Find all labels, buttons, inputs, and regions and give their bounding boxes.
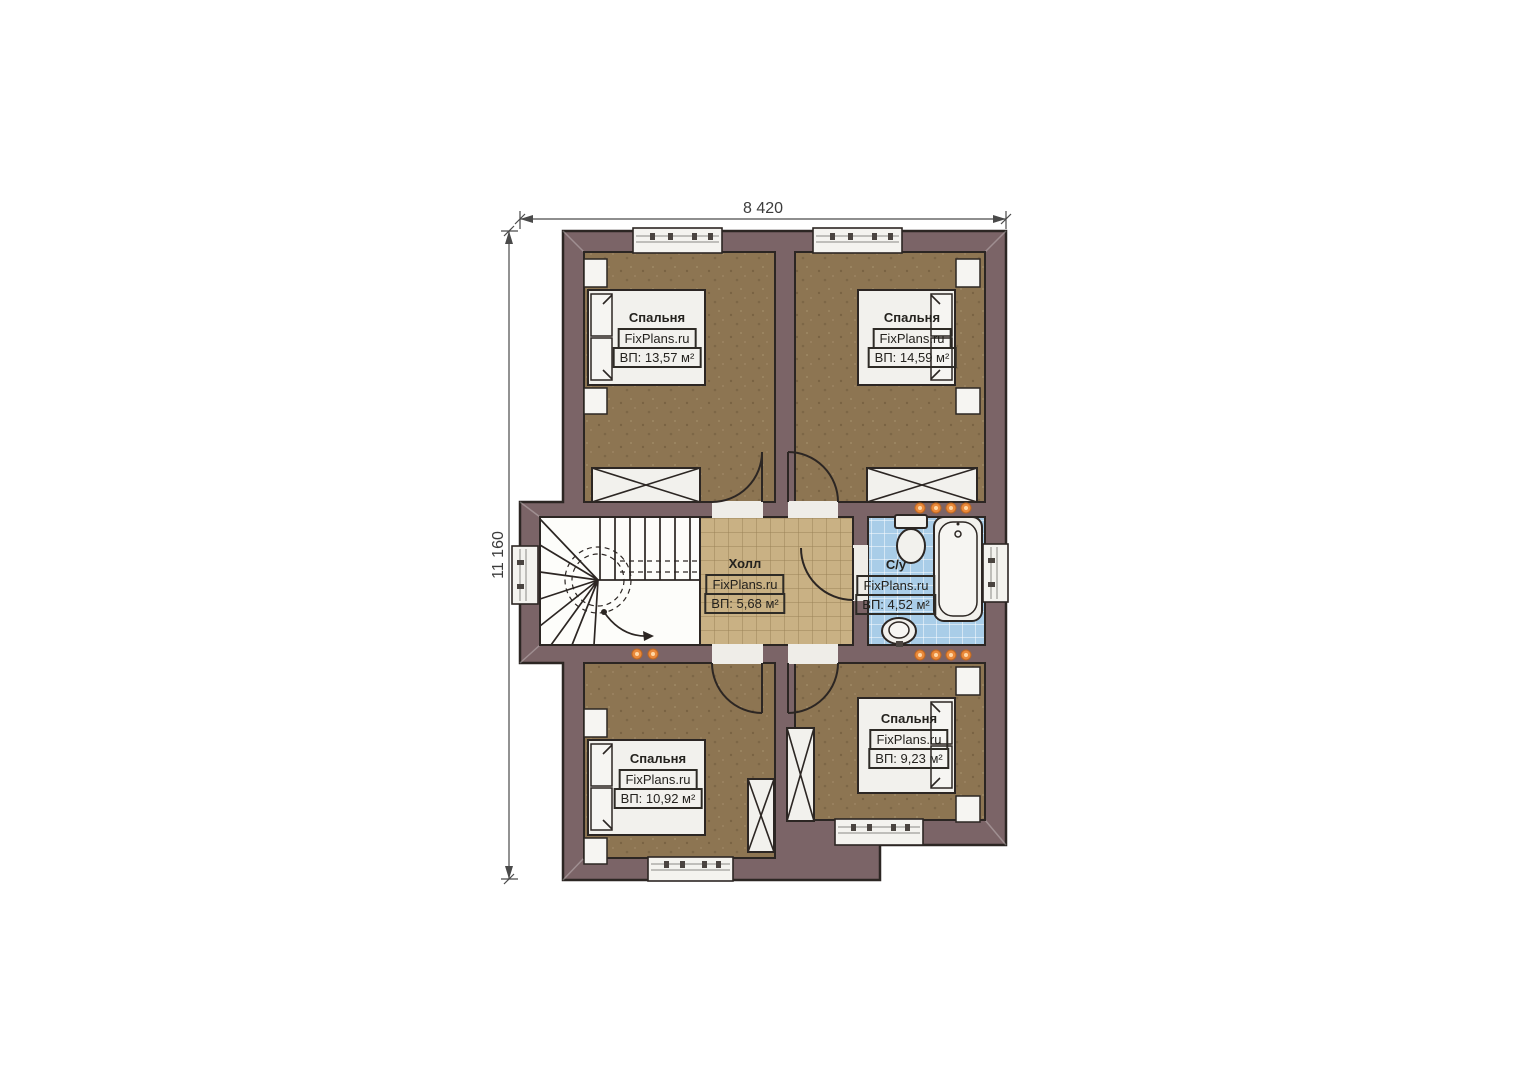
floor-plan-canvas: 8 420 11 160 Спальня FixPlans.ru ВП: 13,… [0, 0, 1528, 1080]
room-label-hall: Холл FixPlans.ru ВП: 5,68 м² [704, 556, 785, 614]
wardrobe-bedroom-top-right [867, 468, 977, 502]
room-label-bedroom-top-right: Спальня FixPlans.ru ВП: 14,59 м² [868, 310, 957, 368]
floor-plan-drawing [0, 0, 1528, 1080]
brand-box: FixPlans.ru [618, 769, 697, 790]
area-box: ВП: 14,59 м² [868, 347, 957, 368]
brand-box: FixPlans.ru [705, 574, 784, 595]
toilet-icon [895, 515, 927, 563]
wardrobe-bedroom-bottom-right [787, 728, 814, 821]
room-title: Спальня [884, 310, 940, 326]
area-box: ВП: 13,57 м² [613, 347, 702, 368]
wardrobe-bedroom-top-left [592, 468, 700, 502]
room-title: Холл [729, 556, 762, 572]
area-box: ВП: 9,23 м² [868, 748, 949, 769]
room-label-bedroom-bottom-right: Спальня FixPlans.ru ВП: 9,23 м² [868, 711, 949, 769]
room-title: Спальня [630, 751, 686, 767]
area-box: ВП: 5,68 м² [704, 593, 785, 614]
window-bottom-right-bedroom [835, 819, 923, 845]
brand-box: FixPlans.ru [617, 328, 696, 349]
room-label-bathroom: С/у FixPlans.ru ВП: 4,52 м² [855, 557, 936, 615]
dimension-label-width: 8 420 [743, 200, 783, 218]
bathtub-icon [934, 517, 982, 621]
brand-box: FixPlans.ru [872, 328, 951, 349]
window-top-left-bedroom [633, 228, 722, 253]
area-box: ВП: 10,92 м² [614, 788, 703, 809]
dimension-label-height: 11 160 [490, 531, 508, 579]
brand-box: FixPlans.ru [856, 575, 935, 596]
area-box: ВП: 4,52 м² [855, 594, 936, 615]
brand-box: FixPlans.ru [869, 729, 948, 750]
room-label-bedroom-bottom-left: Спальня FixPlans.ru ВП: 10,92 м² [614, 751, 703, 809]
room-title: С/у [886, 557, 906, 573]
room-title: Спальня [629, 310, 685, 326]
window-staircase [512, 546, 538, 604]
window-bathroom [983, 544, 1008, 602]
wardrobe-bedroom-bottom-left [748, 779, 774, 852]
room-label-bedroom-top-left: Спальня FixPlans.ru ВП: 13,57 м² [613, 310, 702, 368]
window-top-right-bedroom [813, 228, 902, 253]
room-title: Спальня [881, 711, 937, 727]
window-bottom-left-bedroom [648, 857, 733, 881]
